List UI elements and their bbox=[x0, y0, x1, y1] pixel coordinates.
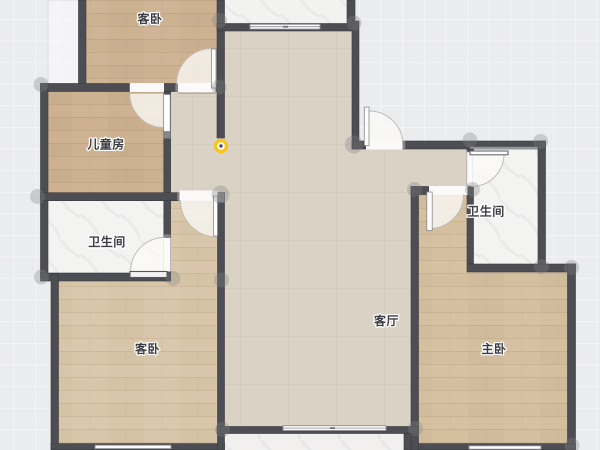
svg-text:客厅: 客厅 bbox=[373, 313, 399, 328]
svg-text:客卧: 客卧 bbox=[136, 11, 162, 26]
svg-text:卫生间: 卫生间 bbox=[467, 204, 505, 219]
svg-text:主卧: 主卧 bbox=[481, 341, 506, 356]
svg-text:儿童房: 儿童房 bbox=[86, 137, 125, 152]
svg-text:卫生间: 卫生间 bbox=[88, 234, 126, 249]
svg-text:客卧: 客卧 bbox=[134, 341, 160, 356]
